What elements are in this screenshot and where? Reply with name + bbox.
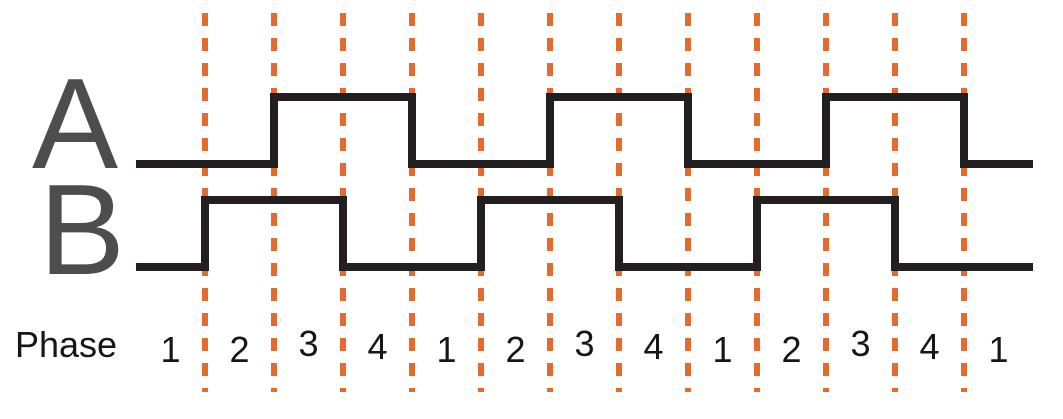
phase-number: 4	[643, 329, 663, 365]
signal-b-waveform	[136, 200, 1033, 267]
phase-number: 1	[712, 332, 732, 368]
phase-number: 1	[988, 332, 1008, 368]
phase-number: 3	[574, 326, 594, 362]
phase-number: 2	[781, 332, 801, 368]
phase-number: 2	[229, 332, 249, 368]
phase-number: 3	[850, 326, 870, 362]
phase-number: 2	[505, 332, 525, 368]
waveform-canvas	[0, 0, 1063, 419]
signal-b-label: B	[39, 166, 125, 295]
phase-number: 4	[367, 329, 387, 365]
phase-number: 1	[436, 332, 456, 368]
signal-a-waveform	[136, 97, 1033, 164]
phase-row-label: Phase	[15, 327, 117, 363]
phase-number: 3	[298, 326, 318, 362]
phase-number: 1	[160, 332, 180, 368]
quadrature-encoder-timing-diagram: A B Phase 1234123412341	[0, 0, 1063, 419]
phase-number: 4	[919, 329, 939, 365]
